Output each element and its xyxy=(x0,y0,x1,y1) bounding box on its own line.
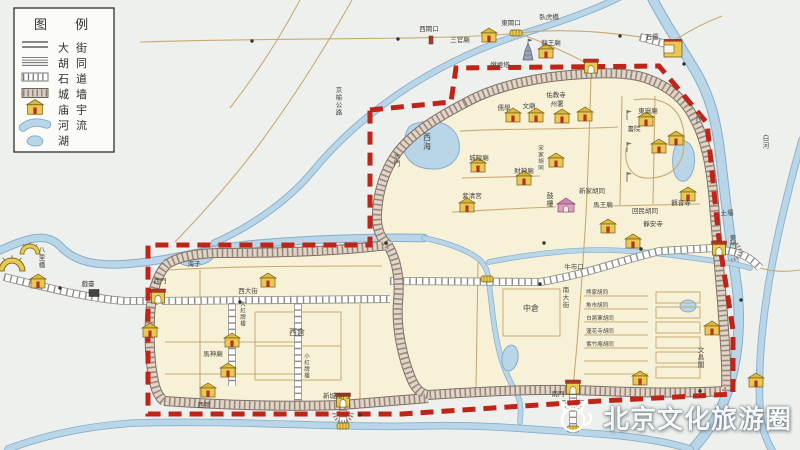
map-label: 蓮花寺胡同 xyxy=(586,327,614,335)
map-label: 海子 xyxy=(188,259,202,268)
map-label: 八里橋 xyxy=(39,246,46,269)
gate-icon xyxy=(712,241,727,255)
legend-item-label: 庙宇 xyxy=(58,103,94,117)
map-label: 西門 xyxy=(154,277,167,285)
figure-icon xyxy=(384,241,387,244)
map-label: 宋家胡同 xyxy=(538,144,544,172)
map-label: 儒學 xyxy=(498,103,512,112)
map-label: 東門 xyxy=(730,233,737,250)
map-label: 龍王廟 xyxy=(541,38,561,47)
bridge-icon xyxy=(481,276,493,282)
figure-icon xyxy=(682,62,685,65)
map-label: 靜安寺 xyxy=(643,219,663,228)
stone-road-legend-symbol xyxy=(22,73,48,81)
map-label: 新城南門 xyxy=(323,391,349,400)
map-label: 東嶽廟 xyxy=(638,106,658,115)
map-label: 西海 xyxy=(423,133,431,151)
map-label: 西倉 xyxy=(289,327,305,337)
figure-icon xyxy=(739,298,742,301)
map-label: 馬神廟 xyxy=(203,349,223,358)
map-label: 紫竹庵胡同 xyxy=(586,340,614,348)
legend-item-label: 城墙 xyxy=(58,87,94,101)
lake-legend-symbol xyxy=(27,136,43,146)
figure-icon xyxy=(618,34,621,37)
legend-item-label: 河流 xyxy=(58,118,94,132)
bridge-icon xyxy=(337,423,349,429)
map-label: 戲臺 xyxy=(82,279,96,288)
map-label: 西大街 xyxy=(238,286,258,295)
map-label: 白將軍胡同 xyxy=(586,314,614,322)
legend-title: 图 例 xyxy=(34,18,100,33)
map-label: 鼓樓 xyxy=(547,191,554,208)
figure-icon xyxy=(58,286,61,289)
map-label: 書院 xyxy=(628,124,642,133)
bridge-icon xyxy=(510,30,522,36)
map-label: 土壩 xyxy=(721,208,735,217)
map-label: 牛市口 xyxy=(564,262,584,271)
map-label: 東閘口 xyxy=(501,18,521,27)
map-label: 佑教寺 xyxy=(546,90,566,99)
gate-icon xyxy=(584,59,599,73)
map-label: 大紅牌樓 xyxy=(240,300,246,328)
map-label: 文廟 xyxy=(523,101,537,110)
legend: 图 例 大街胡同石道城墙庙宇河流湖 xyxy=(14,8,114,152)
stone-road xyxy=(162,299,390,301)
historic-city-map-page: 西閘口東閘口三官廟臥虎橋龍王廟石壩土壩白河京榆公路八里橋戲臺燃燈塔佑教寺儒學文廟… xyxy=(0,0,800,450)
map-label: 熊家胡同 xyxy=(586,288,609,296)
map-label: 白河 xyxy=(763,133,770,150)
map-label: 財神廟 xyxy=(514,166,534,175)
figure-icon xyxy=(542,241,545,244)
map-label: 西營 xyxy=(198,400,212,409)
map-label: 石壩 xyxy=(646,32,660,41)
figure-icon xyxy=(250,39,253,42)
map-label: 西閘口 xyxy=(419,25,439,33)
bridge-icon xyxy=(567,426,579,432)
map-label: 臥虎橋 xyxy=(539,12,559,21)
legend-item-label: 湖 xyxy=(58,135,76,148)
map-label: 馬王廟 xyxy=(593,200,613,209)
figure-icon xyxy=(698,389,701,392)
gate-icon xyxy=(566,380,581,394)
map-label: 魚市胡同 xyxy=(586,301,609,309)
map-label: 燃燈塔 xyxy=(490,60,510,69)
gate-icon xyxy=(151,289,166,303)
map-label: 水門 xyxy=(394,151,401,168)
stage-icon xyxy=(89,290,99,297)
sluice-icon xyxy=(429,36,433,44)
map-label: 州署 xyxy=(551,100,565,108)
map-label: 文昌閣 xyxy=(698,345,705,369)
map-label: 小紅牌樓 xyxy=(304,352,310,380)
map-label: 南大街 xyxy=(563,285,570,309)
river-legend-symbol xyxy=(23,123,47,128)
ubuilding-icon xyxy=(664,39,682,57)
map-label: 京榆公路 xyxy=(336,85,343,117)
figure-icon xyxy=(538,282,541,285)
map-label: 回民胡同 xyxy=(632,206,658,215)
wall-legend-symbol xyxy=(22,89,48,98)
figure-icon xyxy=(358,413,361,416)
map-label: 南門 xyxy=(552,389,565,398)
map-label: 新家胡同 xyxy=(579,186,605,195)
historic-city-map: 西閘口東閘口三官廟臥虎橋龍王廟石壩土壩白河京榆公路八里橋戲臺燃燈塔佑教寺儒學文廟… xyxy=(0,0,800,450)
figure-icon xyxy=(639,247,642,250)
legend-item-label: 石道 xyxy=(58,72,94,86)
map-label: 觀音寺 xyxy=(671,198,691,207)
figure-icon xyxy=(396,37,399,40)
map-label: 中倉 xyxy=(523,303,539,313)
legend-item-label: 大街 xyxy=(58,41,94,55)
map-label: 紫清宮 xyxy=(462,191,482,200)
map-label: 三官廟 xyxy=(450,35,470,44)
legend-item-label: 胡同 xyxy=(58,56,94,70)
map-label: 城隍廟 xyxy=(469,153,489,162)
